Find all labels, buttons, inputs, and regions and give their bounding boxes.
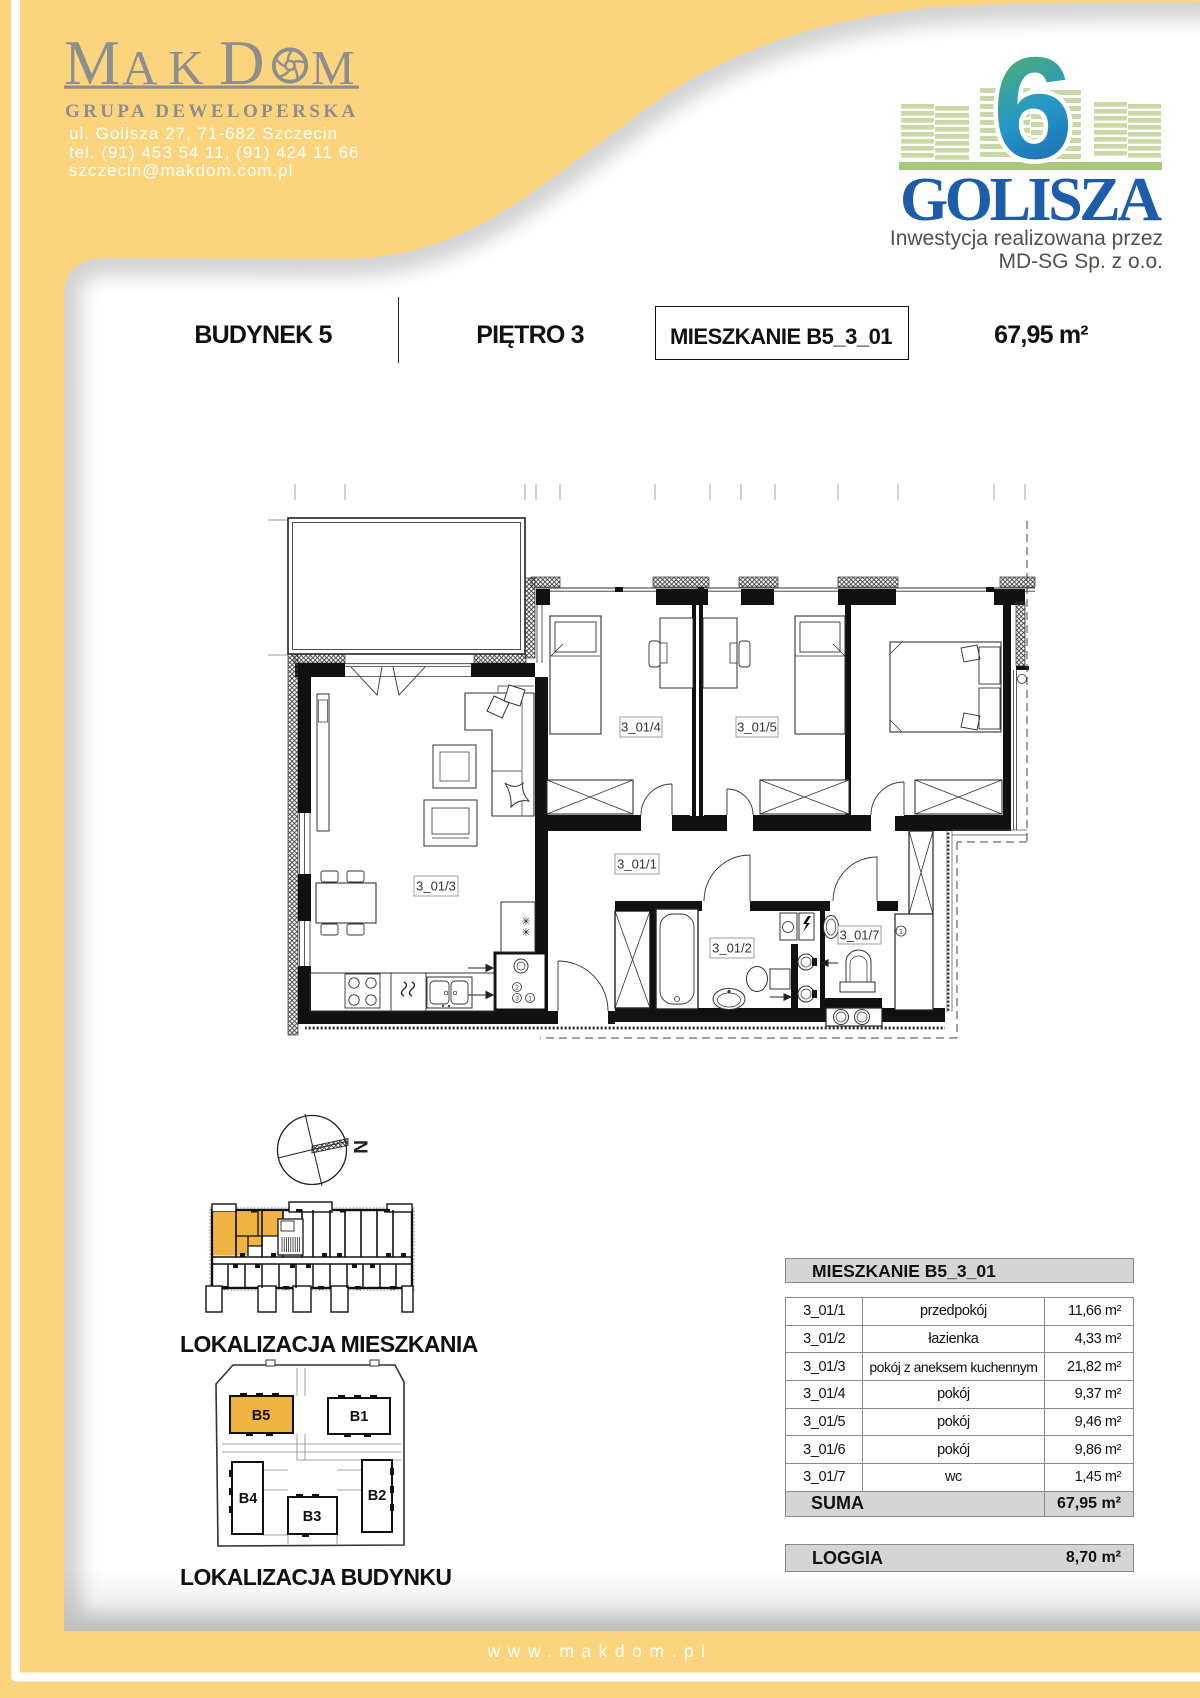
svg-text:3_01/2: 3_01/2 [712,941,752,956]
svg-text:Inwestycja realizowana przez: Inwestycja realizowana przez [890,227,1163,250]
svg-text:3_01/5: 3_01/5 [737,720,777,735]
svg-text:3_01/4: 3_01/4 [621,720,661,735]
svg-text:3_01/3: 3_01/3 [416,879,456,894]
svg-text:2: 2 [515,985,519,992]
svg-text:B2: B2 [368,1488,387,1504]
svg-text:B3: B3 [303,1509,322,1525]
svg-text:B5: B5 [252,1408,271,1424]
svg-text:1: 1 [899,929,903,936]
svg-text:3: 3 [515,996,519,1003]
svg-text:GOLISZA: GOLISZA [900,166,1162,234]
svg-text:B1: B1 [350,1409,369,1425]
svg-text:GRUPA DEWELOPERSKA: GRUPA DEWELOPERSKA [65,101,359,122]
svg-text:1: 1 [528,996,532,1003]
svg-text:3_01/1: 3_01/1 [617,857,657,872]
svg-text:✳: ✳ [521,927,530,939]
svg-text:B4: B4 [239,1491,258,1507]
svg-text:3_01/7: 3_01/7 [840,928,880,943]
svg-text:N: N [349,1140,370,1154]
svg-text:MD-SG Sp. z o.o.: MD-SG Sp. z o.o. [998,250,1163,273]
